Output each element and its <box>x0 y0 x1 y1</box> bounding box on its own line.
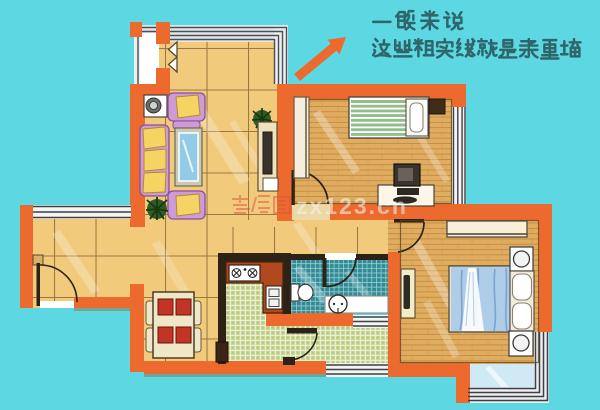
svg-text:zx123.cn: zx123.cn <box>296 193 408 219</box>
